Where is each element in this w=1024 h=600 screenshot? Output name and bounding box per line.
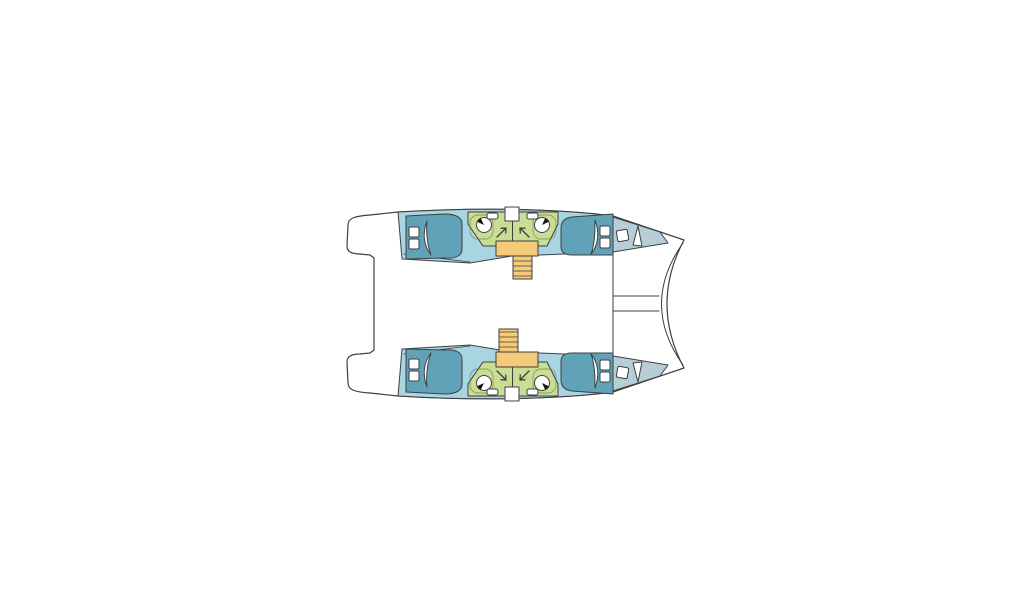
starboard-bow-hatch	[616, 366, 629, 379]
port-shelf-right	[527, 213, 538, 219]
starboard-forward-pillow-1	[600, 372, 610, 382]
starboard-staircase	[499, 329, 518, 352]
starboard-forward-pillow-2	[600, 360, 610, 370]
starboard-aft-pillow-2	[409, 359, 419, 369]
port-staircase	[513, 256, 532, 279]
port-forward-pillow-1	[600, 226, 610, 236]
catamaran-floorplan-page	[0, 0, 1024, 600]
port-stair-flight	[513, 256, 532, 279]
port-bow-hatch	[616, 229, 629, 242]
starboard-stair-flight	[499, 329, 518, 352]
port-forward-pillow-2	[600, 238, 610, 248]
catamaran-floorplan-image	[0, 0, 1024, 600]
starboard-aft-pillow-1	[409, 371, 419, 381]
port-aft-pillow-2	[409, 239, 419, 249]
starboard-shelf-right	[527, 389, 538, 395]
port-bathroom-door	[505, 207, 519, 221]
port-stair-landing	[496, 241, 538, 256]
starboard-shelf-left	[487, 389, 498, 395]
starboard-bathroom-door	[505, 387, 519, 401]
port-shelf-left	[487, 213, 498, 219]
port-aft-pillow-1	[409, 227, 419, 237]
starboard-stair-landing	[496, 352, 538, 367]
